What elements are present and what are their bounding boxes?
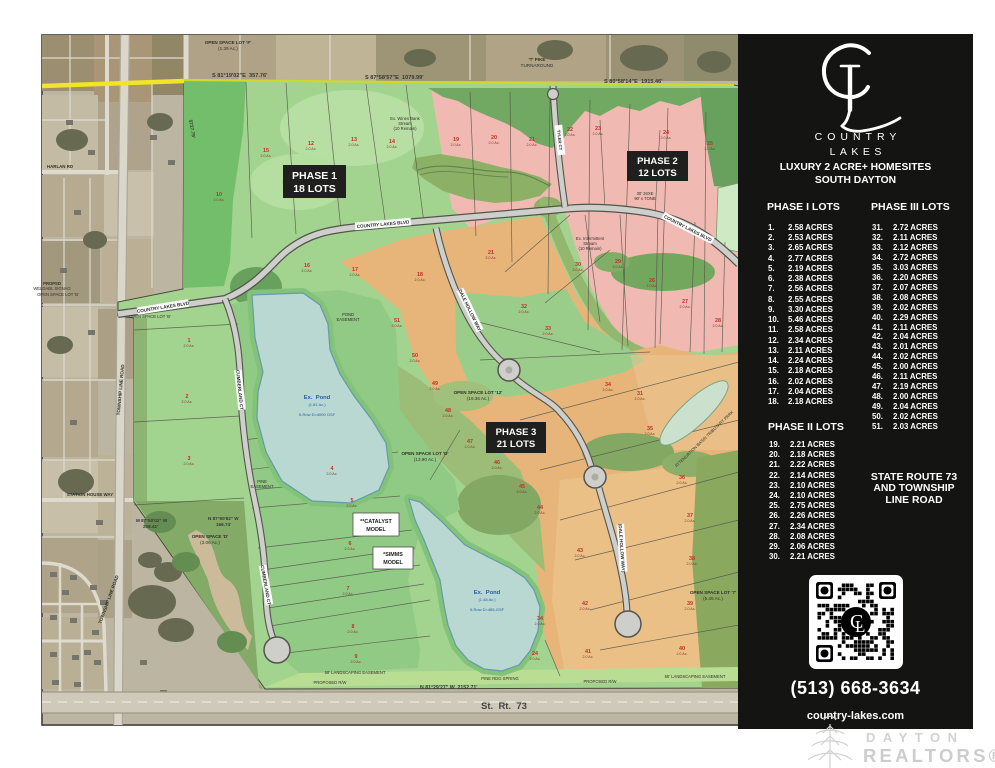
svg-text:L: L (855, 617, 865, 636)
svg-text:REALTORS®: REALTORS® (863, 745, 995, 766)
svg-text:DAYTON: DAYTON (866, 730, 964, 745)
